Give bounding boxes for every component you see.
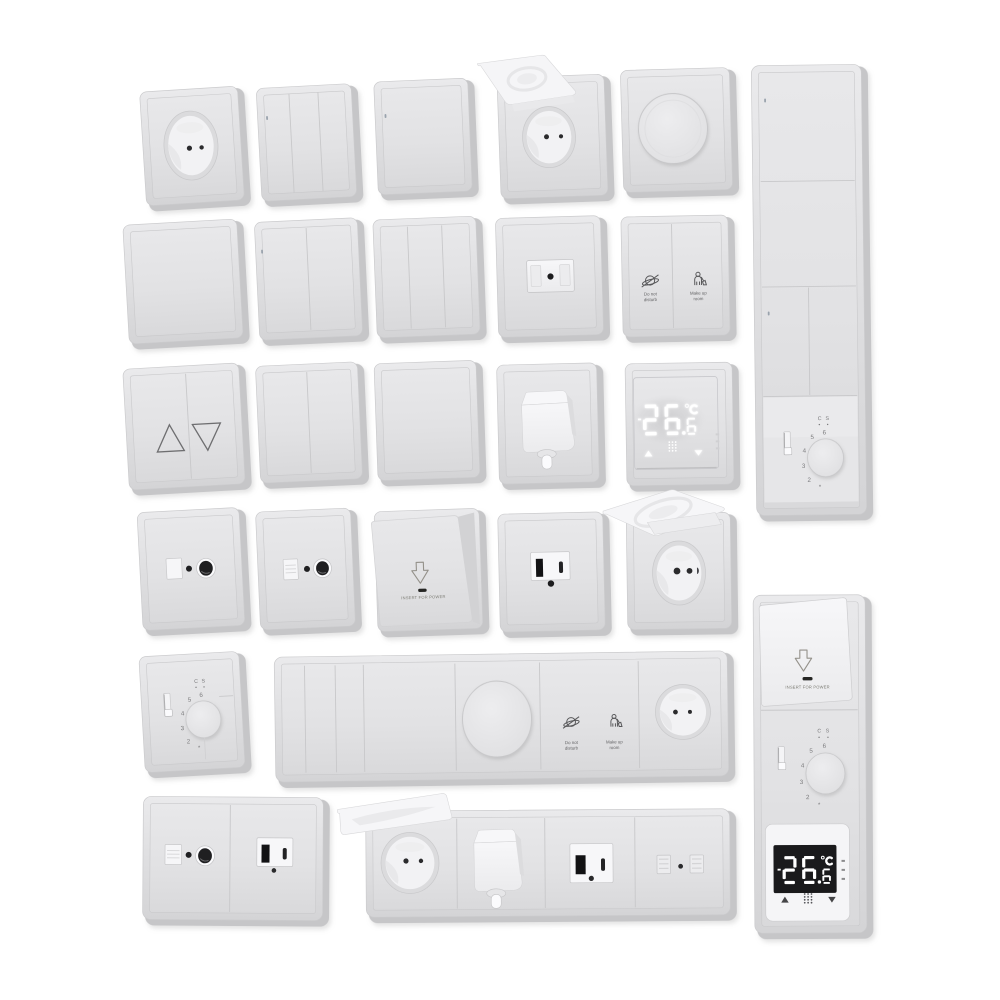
svg-text:2: 2 [807, 477, 811, 484]
svg-text:3: 3 [802, 463, 806, 470]
svg-text:Do not: Do not [565, 740, 579, 745]
svg-text:C: C [194, 679, 198, 685]
svg-text:5: 5 [809, 748, 813, 755]
svg-text:S: S [825, 416, 829, 422]
svg-text:5: 5 [810, 434, 814, 441]
svg-text:room: room [609, 745, 619, 750]
svg-text:disturb: disturb [565, 746, 579, 751]
svg-text:2: 2 [806, 794, 810, 801]
svg-text:4: 4 [803, 448, 807, 455]
svg-text:C: C [818, 416, 822, 422]
svg-text:Make up: Make up [690, 290, 707, 295]
svg-text:6: 6 [823, 743, 827, 750]
svg-text:Do not: Do not [644, 291, 658, 296]
svg-text:S: S [826, 728, 830, 734]
svg-text:Make up: Make up [606, 739, 623, 744]
svg-text:INSERT FOR POWER: INSERT FOR POWER [785, 684, 829, 689]
svg-text:4: 4 [801, 763, 805, 770]
svg-text:C: C [817, 728, 821, 734]
svg-text:disturb: disturb [644, 297, 658, 302]
svg-text:3: 3 [800, 779, 804, 786]
svg-text:room: room [693, 296, 703, 301]
